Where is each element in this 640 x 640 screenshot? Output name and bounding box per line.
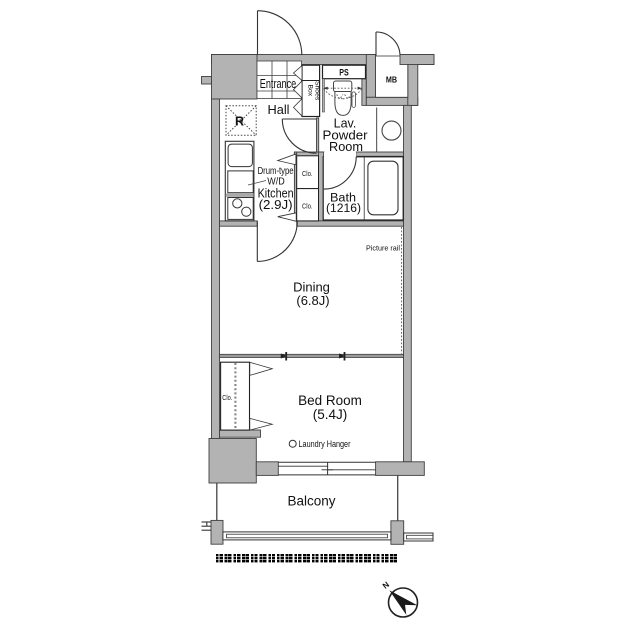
svg-text:MB: MB xyxy=(386,75,397,85)
svg-text:Clo.: Clo. xyxy=(222,395,232,402)
svg-text:Room: Room xyxy=(329,140,363,154)
svg-text:Clo.: Clo. xyxy=(302,202,313,211)
svg-text:(5.4J): (5.4J) xyxy=(313,407,348,422)
svg-text:Laundry Hanger: Laundry Hanger xyxy=(299,439,351,449)
svg-text:(1216): (1216) xyxy=(326,203,361,215)
svg-text:Hall: Hall xyxy=(268,103,290,117)
svg-text:Picture rail: Picture rail xyxy=(366,243,400,252)
svg-text:Balcony: Balcony xyxy=(287,494,335,509)
svg-text:R: R xyxy=(235,115,244,129)
svg-text:PS: PS xyxy=(339,68,349,79)
svg-text:Shoes: Shoes xyxy=(313,81,320,101)
svg-text:(6.8J): (6.8J) xyxy=(296,293,329,308)
svg-text:Box: Box xyxy=(306,85,313,97)
svg-text:Bed Room: Bed Room xyxy=(298,393,362,408)
svg-text:(2.9J): (2.9J) xyxy=(259,198,293,212)
svg-text:Clo.: Clo. xyxy=(302,169,313,178)
svg-text:Entrance: Entrance xyxy=(260,77,297,91)
